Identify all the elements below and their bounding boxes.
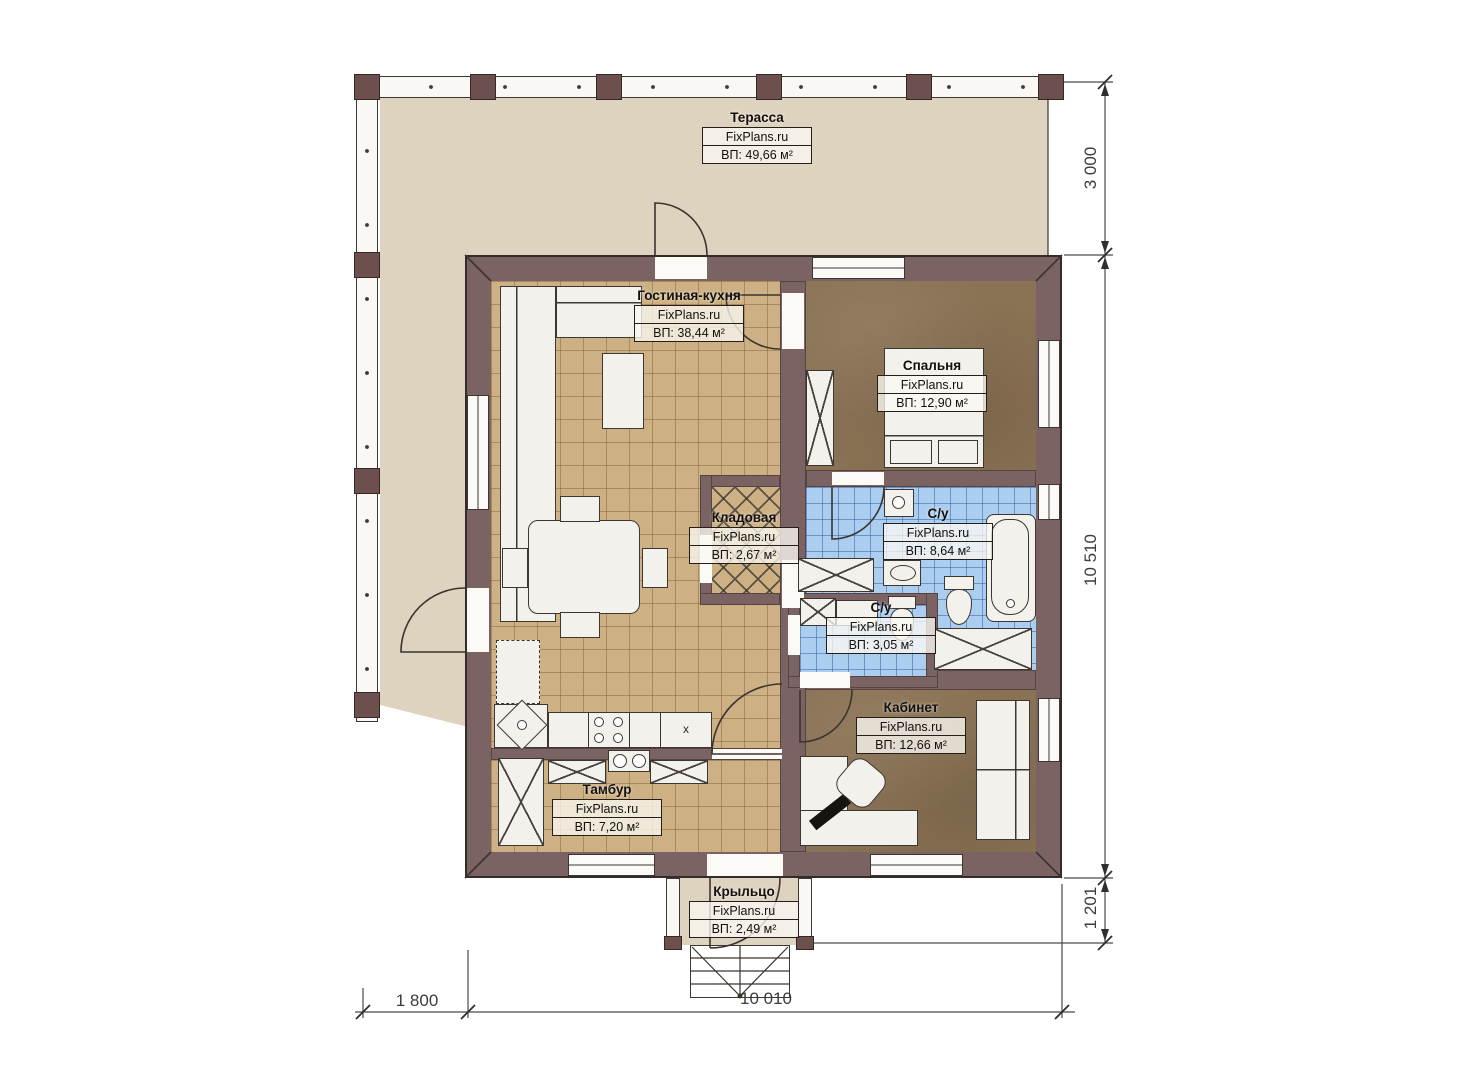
- bathtub: [986, 514, 1036, 622]
- railing-post: [756, 74, 782, 100]
- brand: FixPlans.ru: [690, 528, 798, 546]
- sink-drain: [515, 718, 529, 732]
- railing-post: [470, 74, 496, 100]
- office-sofa: [976, 700, 1030, 840]
- dimension-terrace-depth: 3 000: [1081, 147, 1101, 190]
- door-opening-office: [800, 672, 850, 688]
- dimension-house-height: 10 510: [1081, 534, 1101, 586]
- coffee-table: [602, 353, 644, 429]
- door-opening-bed-bath: [832, 472, 884, 485]
- porch-post: [664, 936, 682, 950]
- brand: FixPlans.ru: [703, 128, 811, 146]
- window: [812, 257, 905, 279]
- wardrobe: [498, 758, 544, 846]
- label-box: FixPlans.ru ВП: 7,20 м²: [552, 799, 662, 836]
- wardrobe: [934, 628, 1032, 670]
- terrace-floor-left: [380, 98, 468, 705]
- railing-post: [354, 74, 380, 100]
- burner: [613, 754, 627, 768]
- brand: FixPlans.ru: [553, 800, 661, 818]
- room-label-small-bathroom: С/у FixPlans.ru ВП: 3,05 м²: [826, 600, 936, 654]
- burner: [613, 733, 623, 743]
- toilet: [944, 576, 974, 626]
- room-name: Кладовая: [689, 510, 799, 525]
- wardrobe: [806, 370, 834, 466]
- storage-wall-bottom: [700, 593, 780, 605]
- window: [1038, 484, 1060, 520]
- kitchen-cabinet-x: x: [660, 712, 712, 748]
- window: [467, 395, 489, 510]
- room-name: С/у: [883, 506, 993, 521]
- railing-post: [354, 692, 380, 718]
- porch-railing: [798, 878, 812, 940]
- terrace-floor-corner: [380, 705, 468, 727]
- room-label-storage: Кладовая FixPlans.ru ВП: 2,67 м²: [689, 510, 799, 564]
- railing-post: [354, 468, 380, 494]
- railing-post: [906, 74, 932, 100]
- porch-railing: [666, 878, 680, 940]
- sofa: [556, 286, 642, 338]
- room-area: ВП: 38,44 м²: [635, 324, 743, 341]
- label-box: FixPlans.ru ВП: 3,05 м²: [826, 617, 936, 654]
- pillow: [890, 440, 932, 464]
- toilet-tank: [944, 576, 974, 590]
- door-opening-porch: [707, 854, 783, 876]
- dining-chair: [502, 548, 528, 588]
- basin: [890, 565, 916, 581]
- railing-post: [596, 74, 622, 100]
- label-box: FixPlans.ru ВП: 8,64 м²: [883, 523, 993, 560]
- cabinet: [548, 760, 606, 784]
- window: [1038, 340, 1060, 428]
- dining-chair: [560, 612, 600, 638]
- label-box: FixPlans.ru ВП: 2,49 м²: [689, 901, 799, 938]
- room-name: Терасса: [702, 110, 812, 125]
- hob: [608, 750, 650, 772]
- room-label-terrace: Терасса FixPlans.ru ВП: 49,66 м²: [702, 110, 812, 164]
- dining-chair: [560, 496, 600, 522]
- room-area: ВП: 8,64 м²: [884, 542, 992, 559]
- room-label-bedroom: Спальня FixPlans.ru ВП: 12,90 м²: [877, 358, 987, 412]
- burner: [594, 717, 604, 727]
- dimension-arrows: [1101, 84, 1109, 941]
- dining-table: [528, 520, 640, 614]
- terrace-railing-top: [356, 76, 1064, 98]
- burner: [632, 754, 646, 768]
- label-box: FixPlans.ru ВП: 12,66 м²: [856, 717, 966, 754]
- room-area: ВП: 7,20 м²: [553, 818, 661, 835]
- dimension-house-width: 10 010: [740, 989, 792, 1009]
- room-area: ВП: 3,05 м²: [827, 636, 935, 653]
- brand: FixPlans.ru: [635, 306, 743, 324]
- washbasin: [883, 560, 921, 586]
- brand: FixPlans.ru: [878, 376, 986, 394]
- door-opening-terrace-left: [467, 588, 489, 652]
- room-label-bathroom: С/у FixPlans.ru ВП: 8,64 м²: [883, 506, 993, 560]
- room-name: Тамбур: [552, 782, 662, 797]
- door-opening-bedroom: [782, 293, 804, 349]
- room-label-porch: Крыльцо FixPlans.ru ВП: 2,49 м²: [689, 884, 799, 938]
- label-box: FixPlans.ru ВП: 49,66 м²: [702, 127, 812, 164]
- room-area: ВП: 12,66 м²: [857, 736, 965, 753]
- brand: FixPlans.ru: [857, 718, 965, 736]
- door-opening-terrace-top: [655, 257, 707, 279]
- door-opening-small-bath: [788, 615, 800, 655]
- brand: FixPlans.ru: [827, 618, 935, 636]
- label-box: FixPlans.ru ВП: 2,67 м²: [689, 527, 799, 564]
- dimension-terrace-width: 1 800: [396, 991, 439, 1011]
- porch-post: [796, 936, 814, 950]
- burner: [594, 733, 604, 743]
- railing-post: [354, 252, 380, 278]
- room-label-vestibule: Тамбур FixPlans.ru ВП: 7,20 м²: [552, 782, 662, 836]
- room-name: С/у: [826, 600, 936, 615]
- pillow: [938, 440, 978, 464]
- brand: FixPlans.ru: [884, 524, 992, 542]
- toilet-bowl: [946, 589, 972, 625]
- room-area: ВП: 2,49 м²: [690, 920, 798, 937]
- room-area: ВП: 12,90 м²: [878, 394, 986, 411]
- dining-chair: [642, 548, 668, 588]
- room-label-office: Кабинет FixPlans.ru ВП: 12,66 м²: [856, 700, 966, 754]
- kitchen-cabinet-marker: x: [683, 722, 689, 736]
- brand: FixPlans.ru: [690, 902, 798, 920]
- bathroom-vanity: [798, 558, 874, 592]
- floor-plan: x: [0, 0, 1473, 1080]
- railing-post: [1038, 74, 1064, 100]
- room-area: ВП: 49,66 м²: [703, 146, 811, 163]
- bathtub-drain: [1006, 599, 1015, 608]
- room-label-living: Гостиная-кухня FixPlans.ru ВП: 38,44 м²: [634, 288, 744, 342]
- window: [870, 854, 963, 876]
- burner: [613, 717, 623, 727]
- room-name: Спальня: [877, 358, 987, 373]
- door-opening-vestibule: [712, 749, 782, 759]
- label-box: FixPlans.ru ВП: 12,90 м²: [877, 375, 987, 412]
- fridge: [496, 640, 540, 704]
- room-name: Гостиная-кухня: [634, 288, 744, 303]
- dimension-porch-depth: 1 201: [1081, 887, 1101, 930]
- stove: [588, 712, 630, 748]
- label-box: FixPlans.ru ВП: 38,44 м²: [634, 305, 744, 342]
- cabinet: [650, 760, 708, 784]
- window: [568, 854, 655, 876]
- room-name: Крыльцо: [689, 884, 799, 899]
- room-name: Кабинет: [856, 700, 966, 715]
- terrace-railing-left: [356, 76, 378, 722]
- storage-wall-top: [700, 475, 780, 487]
- window: [1038, 698, 1060, 762]
- room-area: ВП: 2,67 м²: [690, 546, 798, 563]
